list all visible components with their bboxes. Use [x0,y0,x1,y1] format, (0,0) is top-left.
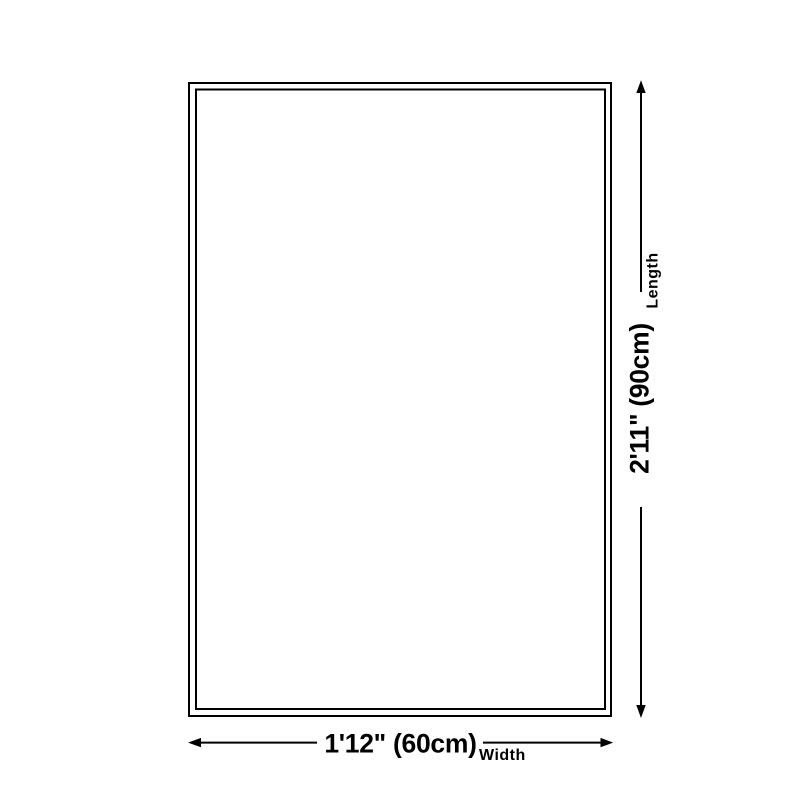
svg-text:1'12" (60cm): 1'12" (60cm) [324,728,476,758]
svg-text:2'11" (90cm): 2'11" (90cm) [625,323,655,474]
svg-text:Length: Length [645,252,662,308]
svg-text:Width: Width [479,747,526,764]
